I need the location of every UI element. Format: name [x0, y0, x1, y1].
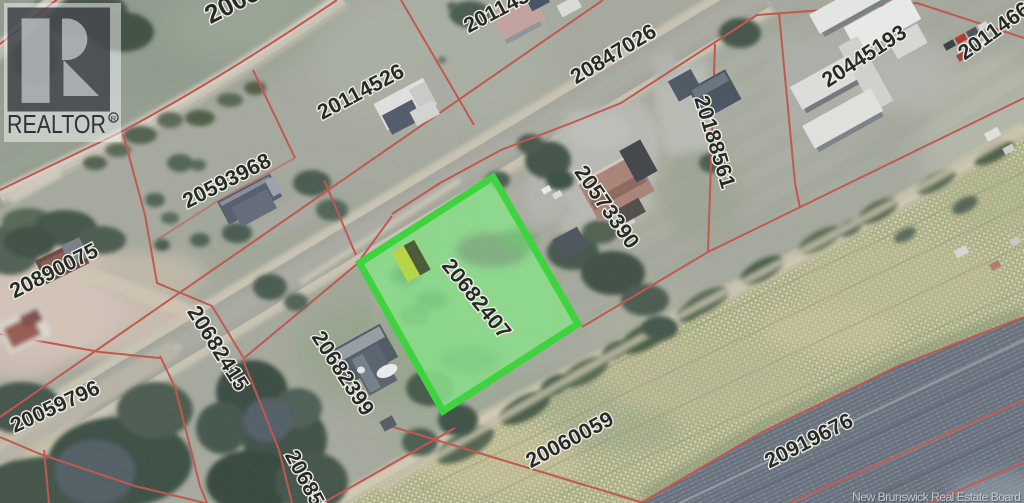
svg-text:New Brunswick Real Estate Boar: New Brunswick Real Estate Board — [852, 490, 1021, 503]
svg-text:R: R — [111, 114, 117, 123]
svg-text:REALTOR: REALTOR — [7, 109, 106, 139]
